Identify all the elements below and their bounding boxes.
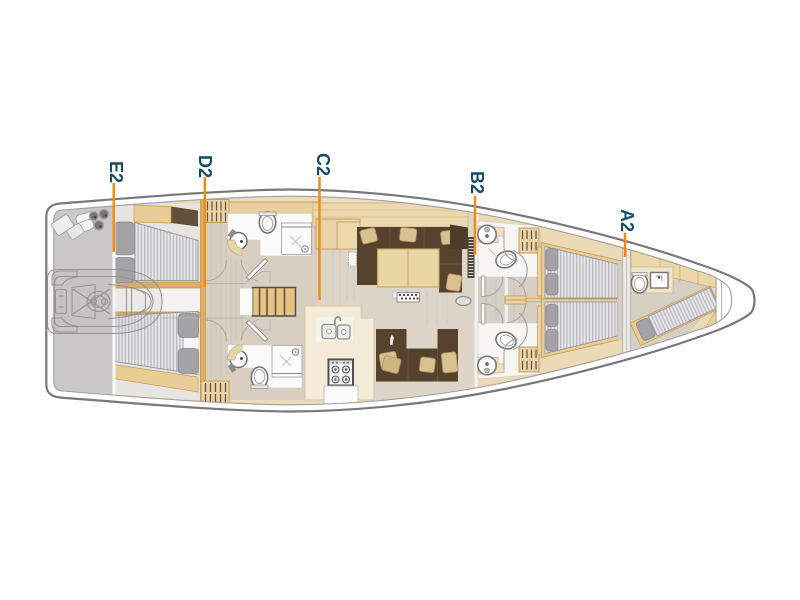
svg-text:B2: B2: [467, 171, 487, 194]
svg-text:D2: D2: [195, 155, 215, 178]
svg-text:A2: A2: [617, 209, 637, 232]
svg-text:E2: E2: [106, 161, 126, 183]
svg-text:C2: C2: [313, 153, 333, 176]
